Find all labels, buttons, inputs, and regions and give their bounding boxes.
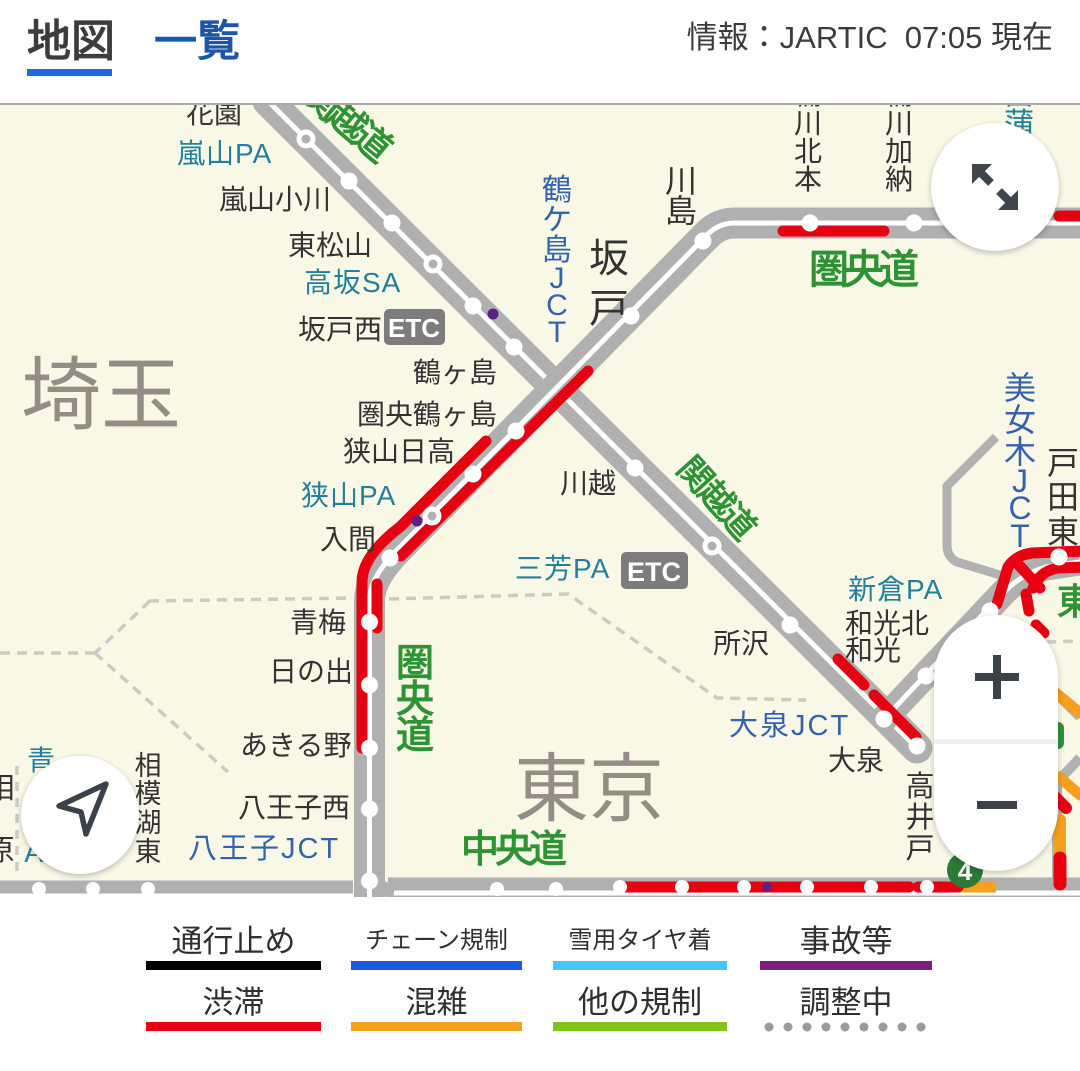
svg-text:ETC: ETC: [388, 313, 440, 343]
svg-text:大泉JCT: 大泉JCT: [729, 709, 850, 742]
svg-text:東: 東: [1047, 514, 1079, 550]
svg-text:戸: 戸: [905, 833, 934, 865]
svg-text:埼玉: 埼玉: [21, 351, 181, 440]
svg-text:川越: 川越: [560, 468, 616, 499]
svg-text:島: 島: [665, 193, 697, 229]
svg-text:所沢: 所沢: [713, 628, 769, 659]
svg-text:東松山: 東松山: [288, 230, 372, 261]
svg-text:圏央鶴ヶ島: 圏央鶴ヶ島: [357, 399, 497, 430]
svg-text:鶴ヶ島: 鶴ヶ島: [413, 357, 497, 388]
svg-text:八王子JCT: 八王子JCT: [188, 833, 340, 865]
svg-text:鶴: 鶴: [542, 174, 572, 207]
svg-text:新倉PA: 新倉PA: [848, 574, 943, 605]
svg-text:川: 川: [794, 108, 822, 139]
svg-text:大泉: 大泉: [828, 745, 884, 776]
svg-text:嵐山PA: 嵐山PA: [177, 138, 272, 169]
svg-text:入間: 入間: [320, 524, 376, 555]
svg-text:加: 加: [885, 136, 913, 167]
svg-text:日の出: 日の出: [269, 656, 353, 687]
svg-text:圏央道: 圏央道: [809, 248, 919, 292]
svg-text:東: 東: [1057, 581, 1080, 622]
svg-text:中央道: 中央道: [461, 829, 567, 871]
svg-text:狭山日高: 狭山日高: [343, 436, 455, 467]
svg-text:坂: 坂: [589, 237, 629, 281]
svg-text:T: T: [1010, 518, 1030, 554]
svg-text:戸: 戸: [589, 287, 629, 331]
svg-text:あきる野: あきる野: [240, 730, 351, 761]
svg-text:嵐山小川: 嵐山小川: [219, 184, 331, 215]
svg-text:高坂SA: 高坂SA: [304, 267, 401, 298]
svg-text:T: T: [548, 316, 566, 349]
svg-text:相: 相: [0, 772, 15, 805]
svg-text:高: 高: [905, 770, 934, 803]
svg-text:美: 美: [1004, 370, 1036, 406]
svg-text:井: 井: [905, 801, 934, 834]
svg-text:東京: 東京: [514, 747, 664, 831]
svg-text:田: 田: [1047, 479, 1079, 515]
svg-text:女: 女: [1004, 402, 1036, 438]
svg-text:ETC: ETC: [627, 557, 681, 587]
svg-text:北: 北: [794, 136, 822, 167]
svg-text:ケ: ケ: [542, 204, 572, 237]
svg-text:八王子西: 八王子西: [238, 792, 350, 823]
svg-text:狭山PA: 狭山PA: [301, 480, 396, 511]
svg-text:花園: 花園: [186, 105, 242, 129]
svg-text:川: 川: [885, 108, 913, 139]
svg-text:戸: 戸: [1047, 445, 1079, 481]
svg-text:原: 原: [0, 835, 15, 867]
svg-text:道: 道: [396, 715, 434, 757]
svg-text:三芳PA: 三芳PA: [515, 553, 610, 584]
svg-text:青梅: 青梅: [290, 607, 346, 638]
svg-text:納: 納: [885, 164, 913, 195]
svg-text:坂戸西: 坂戸西: [298, 314, 382, 345]
svg-text:本: 本: [794, 164, 822, 195]
svg-text:和光: 和光: [845, 635, 901, 666]
